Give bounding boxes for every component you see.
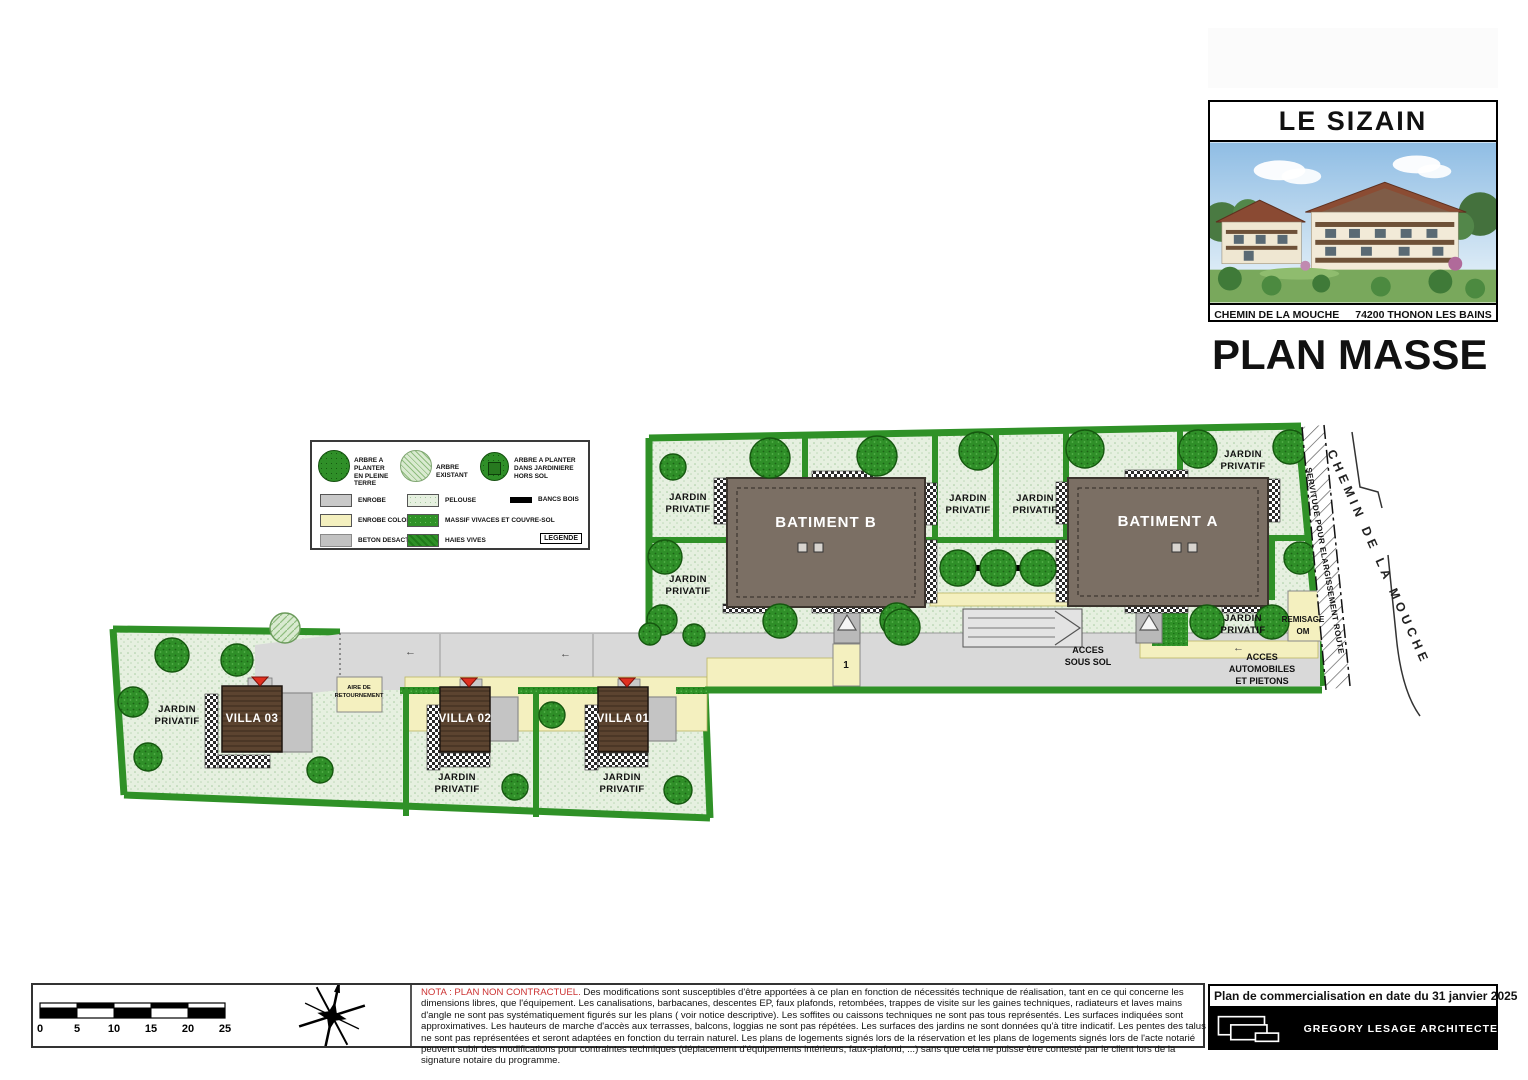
commercialisation-date: Plan de commercialisation en date du 31 … [1208,984,1498,1008]
svg-text:PRIVATIF: PRIVATIF [665,586,710,597]
pelouse-swatch [407,494,439,507]
svg-text:OM: OM [1297,627,1310,636]
bancs-swatch [510,497,532,503]
terrace [714,478,727,524]
existing-tree [270,613,300,643]
nota-text: NOTA : PLAN NON CONTRACTUEL. Des modific… [421,987,1207,1067]
tree [763,604,797,638]
svg-text:10: 10 [108,1023,120,1035]
legend-item-label: HAIES VIVES [445,537,486,545]
tree [118,687,148,717]
arrow-icon: ← [1233,642,1244,654]
terrace [1056,482,1068,524]
nota-body: Des modifications sont susceptibles d'êt… [421,987,1206,1066]
svg-text:JARDIN: JARDIN [158,704,196,715]
tree [648,540,682,574]
divider [410,985,412,1046]
plan-masse-sheet: BATIMENT B BATIMENT A [0,0,1528,1080]
batiment-b: BATIMENT B [714,471,937,613]
label-batiment-b: BATIMENT B [775,514,876,531]
patio [278,693,312,752]
tree [639,623,661,645]
tree [1284,542,1316,574]
tree [539,702,565,728]
svg-text:JARDIN: JARDIN [1016,493,1054,504]
photo-illustration [1210,142,1496,303]
enrobe-swatch [320,494,352,507]
svg-text:SOUS SOL: SOUS SOL [1065,657,1112,667]
beton-swatch [320,534,352,547]
arrow-icon: ← [405,646,416,658]
label-parking-1: 1 [843,660,849,671]
legend-item-label: ENROBE [358,497,386,505]
label-aire: AIRE DE [347,685,371,691]
tree [664,776,692,804]
svg-text:PRIVATIF: PRIVATIF [1220,461,1265,472]
label-villa-03: VILLA 03 [226,713,279,725]
legend-item-label: PELOUSE [445,497,476,505]
ramp-acces-sous-sol [963,609,1082,647]
legend-title: LEGENDE [540,533,582,544]
tree [155,638,189,672]
architect-logo-icon [1216,1011,1292,1047]
svg-text:ET PIETONS: ET PIETONS [1235,676,1288,686]
svg-text:JARDIN: JARDIN [949,493,987,504]
svg-text:20: 20 [182,1023,194,1035]
tree [1273,430,1307,464]
svg-text:JARDIN: JARDIN [669,492,707,503]
project-title: LE SIZAIN [1210,102,1496,142]
tree [134,743,162,771]
svg-text:JARDIN: JARDIN [603,772,641,783]
massif-swatch [407,514,439,527]
tree-planter-symbol [318,450,350,482]
svg-text:PRIVATIF: PRIVATIF [945,505,990,516]
terrace [925,540,937,603]
svg-text:RETOURNEMENT: RETOURNEMENT [335,693,384,699]
patio [490,697,518,741]
scale-and-north: 0 5 10 15 20 25 [33,985,483,1046]
tree-jardiniere-symbol [480,452,509,481]
terrace [440,753,490,767]
svg-text:PRIVATIF: PRIVATIF [154,716,199,727]
svg-text:15: 15 [145,1023,157,1035]
terrace [925,483,937,525]
north-arrow-icon [295,985,369,1046]
label-batiment-a: BATIMENT A [1118,513,1219,530]
project-photo [1210,142,1496,303]
svg-text:JARDIN: JARDIN [1224,613,1262,624]
svg-text:JARDIN: JARDIN [438,772,476,783]
terrace [205,694,218,768]
svg-text:0: 0 [37,1023,43,1035]
tree [1020,550,1056,586]
tree [1066,430,1104,468]
label-remisage: REMISAGE [1282,615,1325,624]
legend-item-label: ARBRE A PLANTEREN PLEINE TERRE [354,457,402,488]
bottom-info-box: 0 5 10 15 20 25 NOTA : PLAN NON CONTRACT… [31,983,1205,1048]
project-address: CHEMIN DE LA MOUCHE 74200 THONON LES BAI… [1210,303,1496,324]
legend-item-label: BANCS BOIS [538,496,579,504]
drawing-title: PLAN MASSE [1212,331,1487,379]
tree [750,438,790,478]
terrace [1125,470,1188,478]
architect-block: GREGORY LESAGE ARCHITECTE [1208,1008,1498,1050]
terrace [598,753,648,767]
tree [940,550,976,586]
svg-text:25: 25 [219,1023,231,1035]
scale-bar: 0 5 10 15 20 25 [37,1003,231,1035]
svg-text:5: 5 [74,1023,80,1035]
svg-text:PRIVATIF: PRIVATIF [599,784,644,795]
tree [980,550,1016,586]
legend-item-label: MASSIF VIVACES ET COUVRE-SOL [445,517,575,525]
tree [1190,605,1224,639]
svg-text:PRIVATIF: PRIVATIF [665,504,710,515]
tree [884,609,920,645]
terrace [1056,540,1068,602]
tree [683,624,705,646]
legend: ARBRE A PLANTEREN PLEINE TERRE ARBRE EXI… [310,440,590,550]
label-acces-sous-sol: ACCES [1072,645,1104,655]
nota-warning: NOTA : PLAN NON CONTRACTUEL. [421,987,581,998]
svg-text:JARDIN: JARDIN [669,574,707,585]
tree [857,436,897,476]
label-villa-01: VILLA 01 [597,713,650,725]
arrow-icon: ← [560,648,571,660]
haies-swatch [407,534,439,547]
legend-item-label: ARBRE EXISTANT [436,464,482,480]
label-villa-02: VILLA 02 [439,713,492,725]
tree-existing-symbol [400,450,432,482]
svg-text:JARDIN: JARDIN [1224,449,1262,460]
tree [307,757,333,783]
tree [502,774,528,800]
architect-name: GREGORY LESAGE ARCHITECTE [1304,1023,1498,1035]
svg-text:AUTOMOBILES: AUTOMOBILES [1229,664,1295,674]
tree [221,644,253,676]
svg-text:PRIVATIF: PRIVATIF [434,784,479,795]
patio [648,697,676,741]
address-city: 74200 THONON LES BAINS [1355,309,1492,321]
title-block: LE SIZAIN [1208,100,1498,322]
terrace [1268,479,1280,522]
tree [1179,430,1217,468]
label-acces-auto: ACCES [1246,652,1278,662]
tree [660,454,686,480]
tree [959,432,997,470]
svg-text:PRIVATIF: PRIVATIF [1220,625,1265,636]
address-street: CHEMIN DE LA MOUCHE [1214,309,1339,321]
terrace [218,755,270,768]
legend-item-label: ARBRE A PLANTERDANS JARDINIERE HORS SOL [514,457,586,480]
enrobe-colore-swatch [320,514,352,527]
svg-text:PRIVATIF: PRIVATIF [1012,505,1057,516]
batiment-a: BATIMENT A [1056,470,1280,613]
